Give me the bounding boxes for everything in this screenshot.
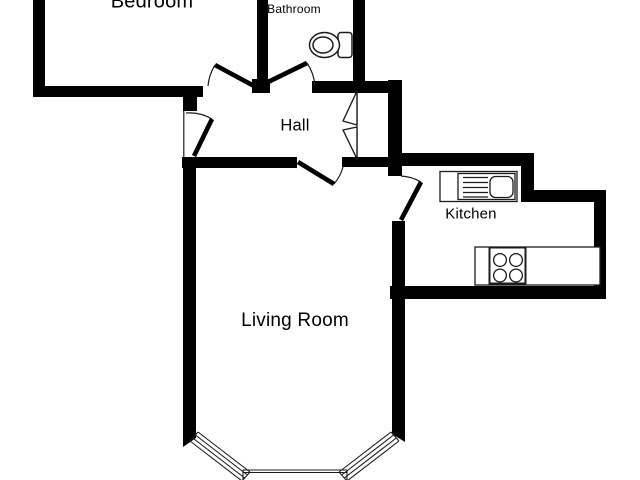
folding-door-lower-leaf <box>343 127 357 159</box>
toilet-bowl-inner <box>313 37 333 53</box>
living-room-door-leaf <box>298 162 334 184</box>
sink-basin <box>490 177 513 198</box>
wall-living-east <box>392 221 405 431</box>
room-label-bedroom: Bedroom <box>111 0 194 14</box>
wall-hall-south-left <box>182 157 297 168</box>
bay-window <box>190 432 399 480</box>
wall-kitchen-step-band <box>521 190 606 202</box>
toilet-icon <box>310 33 353 58</box>
wall-bedroom-bottom <box>33 86 203 97</box>
folding-door-upper-leaf <box>343 91 357 125</box>
room-label-hall: Hall <box>280 117 309 136</box>
bay-window-right-pane <box>339 432 399 480</box>
hob-icon <box>475 247 600 285</box>
bedroom-door-arc <box>208 65 215 86</box>
wall-hall-nw-stub <box>183 86 197 111</box>
floorplan-drawing <box>0 0 640 480</box>
entrance-door-leaf <box>194 119 212 156</box>
wall-kitchen-top <box>388 153 534 166</box>
wall-bevel-west <box>183 436 196 447</box>
bay-window-center-pane <box>243 470 347 480</box>
walls <box>33 0 606 447</box>
kitchen-door-arc <box>401 176 421 182</box>
room-label-living-room: Living Room <box>241 310 349 332</box>
entrance-door-arc <box>186 113 212 119</box>
wall-bathroom-right <box>353 0 365 93</box>
living-room-door-arc <box>334 167 343 184</box>
room-label-bathroom: Bathroom <box>267 2 321 16</box>
bathroom-door-leaf <box>266 63 307 83</box>
bay-window-left-pane <box>190 432 250 480</box>
room-label-kitchen: Kitchen <box>445 206 496 223</box>
kitchen-door-leaf <box>401 182 421 220</box>
wall-living-west <box>183 157 196 436</box>
sink-icon <box>440 172 517 202</box>
wall-kitchen-bottom <box>390 286 606 299</box>
wall-bedroom-left <box>33 0 45 97</box>
floorplan: Bedroom Bathroom Hall Kitchen Living Roo… <box>0 0 640 480</box>
folding-closet-door <box>343 91 357 159</box>
bedroom-door-leaf <box>215 65 254 86</box>
